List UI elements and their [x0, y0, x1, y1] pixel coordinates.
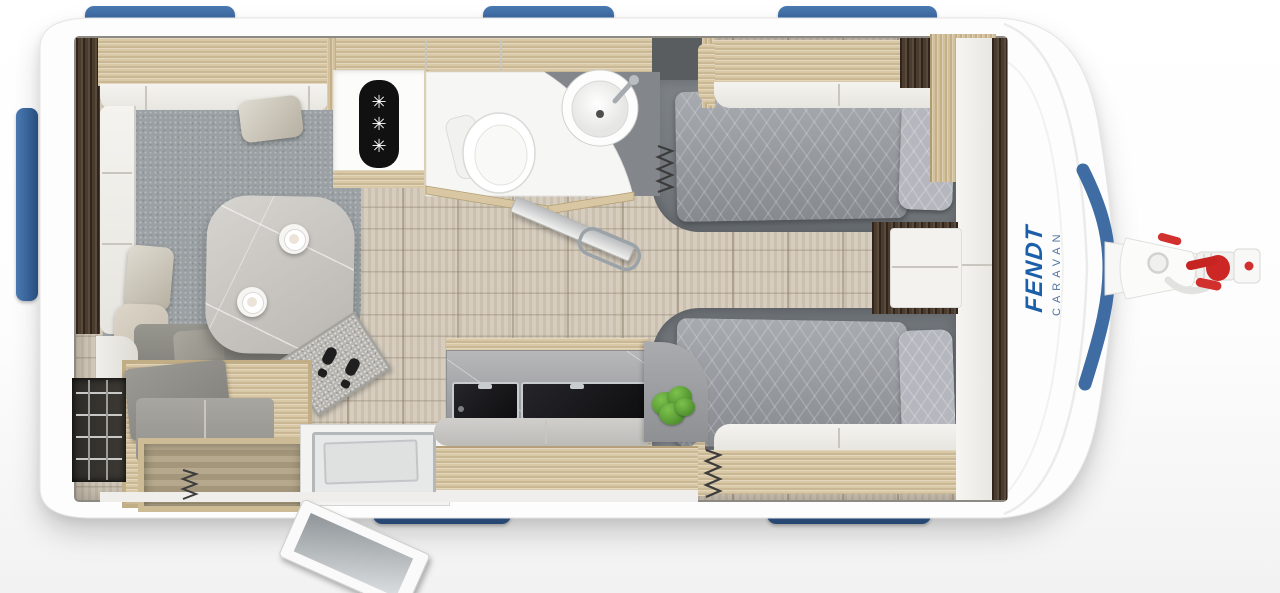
faucet-base	[629, 75, 639, 85]
caravan-floorplan: FENDT CARAVAN ✳	[0, 0, 1280, 593]
washbasin-drain	[596, 110, 604, 118]
bed-slat-spring-entry	[183, 470, 196, 499]
toilet-seat	[475, 125, 527, 185]
washbasin-bowl	[572, 81, 628, 137]
bed-slat-spring-bottom	[706, 450, 720, 497]
bed-slat-spring-top	[658, 146, 672, 192]
overlay-details	[0, 0, 1280, 593]
